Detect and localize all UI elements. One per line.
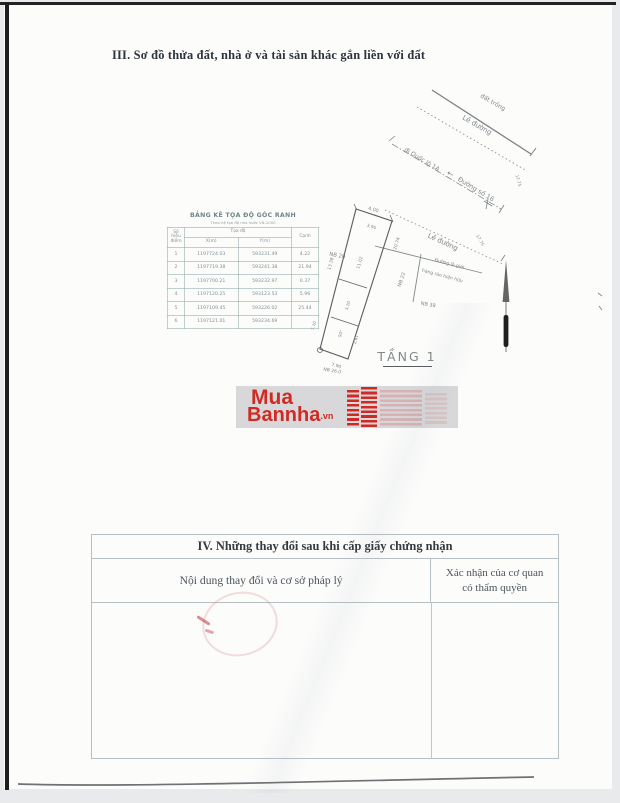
cell-edge: 25.44	[292, 302, 319, 316]
table-row: 2 1197719.38 593241.38 21.94	[168, 261, 319, 275]
bottom-page-curl	[18, 777, 534, 785]
label-corridor-line2: hàng rào hiện hữu	[421, 267, 464, 285]
cell-y: 593231.49	[238, 248, 292, 262]
label-plot-nb38: NB 38	[420, 301, 436, 310]
cell-point: 2	[168, 261, 185, 275]
logo-building-icon	[361, 387, 377, 427]
col-point-header: Số hiệu điểm	[168, 228, 185, 248]
coordinate-table-title: BẢNG KÊ TỌA ĐỘ GÓC RANH	[167, 212, 319, 219]
section4-col-right-line1: Xác nhận của cơ quan	[446, 566, 543, 580]
label-corridor-width-2: 17.75	[475, 234, 485, 247]
logo-bannha: Bannha	[247, 404, 320, 426]
cell-y: 593241.38	[238, 261, 292, 275]
page-top-border	[0, 2, 616, 5]
cell-edge	[292, 315, 319, 329]
measure-lower-right: 2.61	[352, 334, 359, 345]
label-plot-nb22: NB 22	[397, 272, 407, 288]
north-arrow-icon	[503, 260, 510, 352]
header-row: Số hiệu điểm Tọa độ Cạnh	[168, 228, 319, 238]
label-vacant-land: đất trống	[479, 93, 507, 113]
col-y-header: Y(m)	[238, 238, 292, 248]
label-corridor-line1: Đường lộ giới	[434, 256, 465, 271]
cell-edge: 5.96	[292, 288, 319, 302]
cell-y: 593234.69	[238, 315, 292, 329]
cell-y: 593226.02	[238, 302, 292, 316]
section4-col-right-line2: có thẩm quyền	[462, 581, 527, 595]
cell-point: 5	[168, 302, 185, 316]
table-row: 6 1197121.01 593234.69	[168, 315, 319, 329]
cell-edge: 21.94	[292, 261, 319, 275]
table-row: 1 1197724.03 593231.49 4.22	[168, 248, 319, 262]
logo-building-icon-faint	[425, 393, 447, 426]
page-edge-marks	[598, 293, 602, 310]
logo-vn-suffix: .vn	[320, 411, 333, 421]
table-row: 4 1197120.25 593123.53 5.96	[168, 288, 319, 302]
coordinate-grid: Số hiệu điểm Tọa độ Cạnh X(m) Y(m) 1 119…	[167, 227, 319, 329]
road-network	[375, 90, 536, 302]
col-edge-header: Cạnh	[292, 228, 319, 248]
cell-x: 1197109.45	[185, 302, 239, 316]
scanned-certificate-screenshot: { "colors": { "logo_red": "#cf2b24", "st…	[0, 0, 620, 800]
cell-x: 1197719.38	[185, 261, 239, 275]
col-x-header: X(m)	[185, 238, 239, 248]
cell-edge: 0.37	[292, 275, 319, 289]
cell-point: 4	[168, 288, 185, 302]
label-to-highway: đi Quốc lộ 1A	[403, 146, 442, 173]
label-arrow-left: ←	[445, 168, 456, 179]
logo-building-icon-faint	[380, 390, 422, 427]
section4-column-headers: Nội dung thay đổi và cơ sở pháp lý Xác n…	[92, 559, 558, 603]
measure-inner: 3.10	[344, 300, 351, 311]
logo-text-line2: Bannha.vn	[247, 405, 333, 425]
section4-body	[92, 603, 558, 759]
cell-x: 1197121.01	[185, 315, 239, 329]
cell-point: 3	[168, 275, 185, 289]
measure-angle: 50°	[337, 329, 344, 338]
section4-title: IV. Những thay đổi sau khi cấp giấy chứn…	[92, 535, 558, 559]
measure-top2: 3.95	[366, 223, 377, 232]
floor-label: TẦNG 1	[376, 348, 436, 364]
cell-edge: 4.22	[292, 248, 319, 262]
certificate-page: III. Sơ đồ thửa đất, nhà ở và tài sản kh…	[4, 3, 612, 789]
label-road-edge-2: Lề đường	[426, 232, 459, 253]
cell-x: 1197700.21	[185, 275, 239, 289]
label-street16: Đường số 16	[456, 175, 495, 203]
table-row: 5 1197109.45 593226.02 25.44	[168, 302, 319, 316]
cell-point: 6	[168, 315, 185, 329]
table-row: 3 1197700.21 593232.97 0.37	[168, 275, 319, 289]
section4-table: IV. Những thay đổi sau khi cấp giấy chứn…	[91, 534, 559, 759]
logo-building-icon	[347, 390, 359, 426]
measure-left: 13.38	[327, 257, 336, 271]
cell-y: 593232.97	[238, 275, 292, 289]
cell-y: 593123.53	[238, 288, 292, 302]
coordinate-table-subtitle: Theo hệ tọa độ nhà nước VN-2000	[167, 220, 319, 225]
label-road-edge-1: Lề đường	[461, 114, 493, 137]
measure-right-inner: 11.02	[355, 256, 364, 270]
measure-right-upper: 20.74	[392, 237, 401, 251]
page-left-border	[5, 3, 9, 790]
label-corridor-width-1: 17.75	[514, 174, 522, 187]
col-coords-header: Tọa độ	[185, 228, 292, 238]
coordinate-table: BẢNG KÊ TỌA ĐỘ GÓC RANH Theo hệ tọa độ n…	[167, 212, 319, 329]
section4-col-right: Xác nhận của cơ quan có thẩm quyền	[430, 559, 558, 602]
cell-x: 1197120.25	[185, 288, 239, 302]
cell-point: 1	[168, 248, 185, 262]
cell-x: 1197724.03	[185, 248, 239, 262]
section4-divider	[431, 603, 432, 759]
